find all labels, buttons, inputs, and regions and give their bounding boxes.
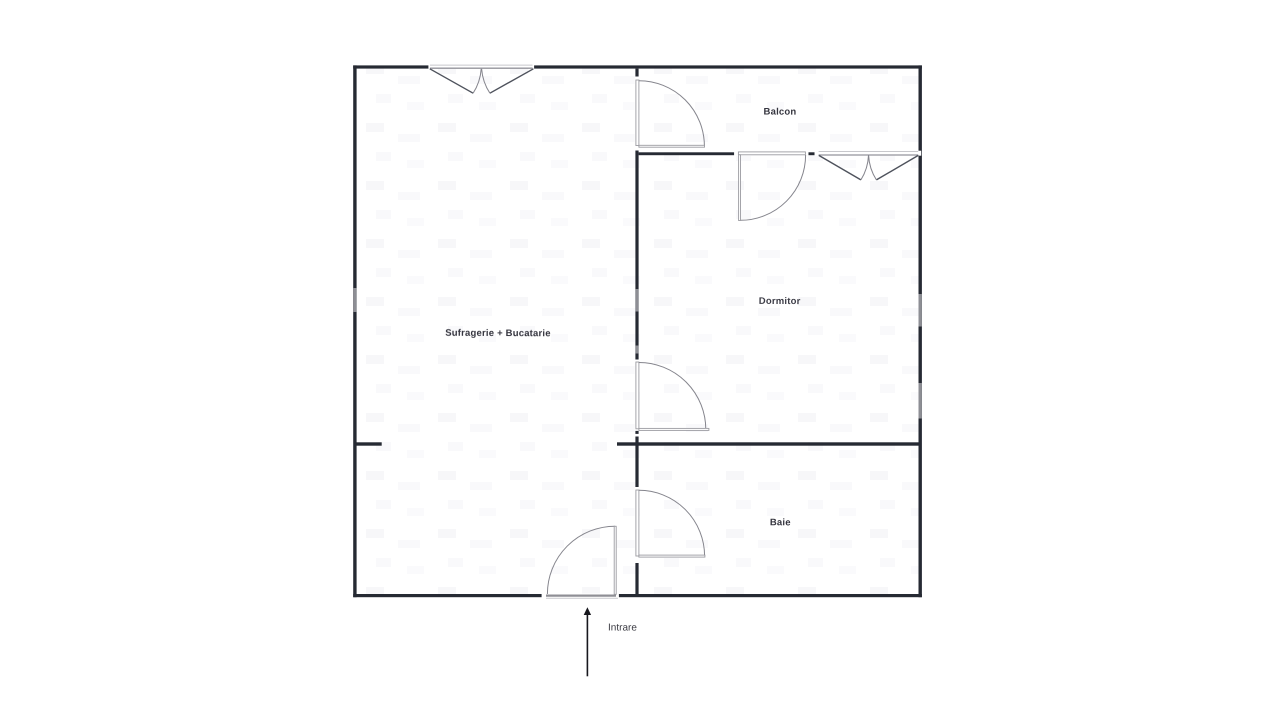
- svg-text:Intrare: Intrare: [608, 623, 637, 634]
- svg-text:Balcon: Balcon: [764, 107, 797, 118]
- svg-text:Baie: Baie: [770, 517, 791, 528]
- svg-text:Sufragerie + Bucatarie: Sufragerie + Bucatarie: [445, 328, 551, 340]
- svg-text:Dormitor: Dormitor: [759, 296, 801, 307]
